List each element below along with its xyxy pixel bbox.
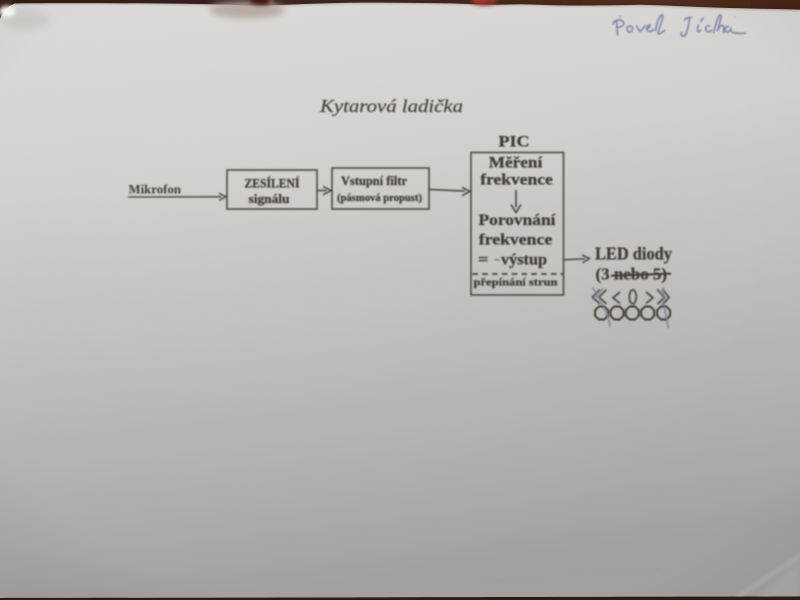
svg-text:Měření: Měření [489, 155, 543, 172]
svg-text:přepínání strun: přepínání strun [474, 277, 558, 289]
svg-text:výstup: výstup [501, 252, 547, 269]
svg-text:(pásmová propust): (pásmová propust) [337, 193, 422, 204]
svg-text:frekvence: frekvence [480, 172, 553, 189]
svg-text:=: = [478, 252, 489, 269]
svg-text:LED diody: LED diody [595, 244, 672, 264]
svg-text:PIC: PIC [499, 134, 530, 151]
svg-text:Mikrofon: Mikrofon [129, 182, 182, 197]
svg-text:signálu: signálu [249, 191, 290, 206]
svg-text:ZESÍLENÍ: ZESÍLENÍ [245, 176, 300, 191]
svg-text:frekvence: frekvence [479, 232, 553, 249]
svg-text:Porovnání: Porovnání [479, 212, 557, 229]
svg-text:Vstupní filtr: Vstupní filtr [341, 173, 407, 188]
svg-text:Kytarová ladička: Kytarová ladička [319, 96, 463, 116]
